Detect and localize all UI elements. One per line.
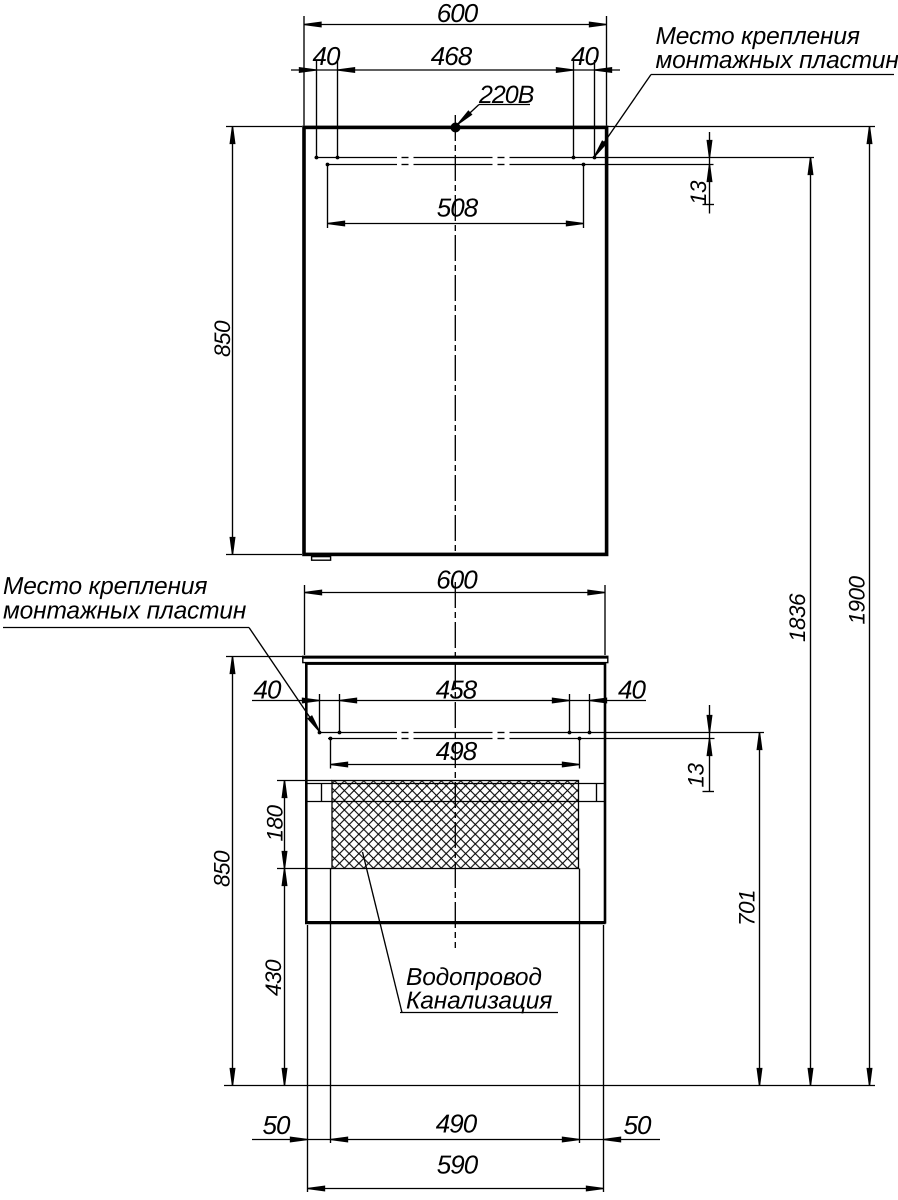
svg-text:458: 458 — [436, 675, 478, 705]
svg-text:490: 490 — [436, 1109, 478, 1139]
svg-text:50: 50 — [263, 1110, 291, 1140]
svg-text:монтажных пластин: монтажных пластин — [3, 598, 246, 625]
svg-text:600: 600 — [436, 565, 478, 595]
svg-text:180: 180 — [263, 804, 288, 841]
svg-text:50: 50 — [624, 1110, 652, 1140]
svg-text:508: 508 — [437, 193, 479, 223]
svg-text:468: 468 — [431, 41, 473, 71]
svg-text:40: 40 — [618, 675, 646, 705]
svg-text:13: 13 — [686, 180, 711, 205]
svg-text:Место крепления: Место крепления — [3, 573, 207, 600]
svg-text:монтажных пластин: монтажных пластин — [656, 47, 898, 74]
svg-text:850: 850 — [210, 320, 235, 357]
svg-text:701: 701 — [735, 890, 760, 926]
svg-text:430: 430 — [261, 959, 286, 996]
svg-text:498: 498 — [436, 736, 478, 766]
svg-text:40: 40 — [254, 675, 282, 705]
svg-text:40: 40 — [313, 41, 341, 71]
svg-text:1900: 1900 — [845, 575, 870, 624]
svg-text:40: 40 — [571, 41, 599, 71]
svg-text:590: 590 — [437, 1150, 479, 1180]
svg-text:600: 600 — [437, 0, 479, 28]
svg-text:Канализация: Канализация — [406, 988, 552, 1015]
svg-text:1836: 1836 — [785, 593, 810, 642]
svg-text:13: 13 — [684, 763, 709, 788]
svg-text:Место крепления: Место крепления — [656, 23, 860, 50]
svg-text:850: 850 — [210, 850, 235, 887]
